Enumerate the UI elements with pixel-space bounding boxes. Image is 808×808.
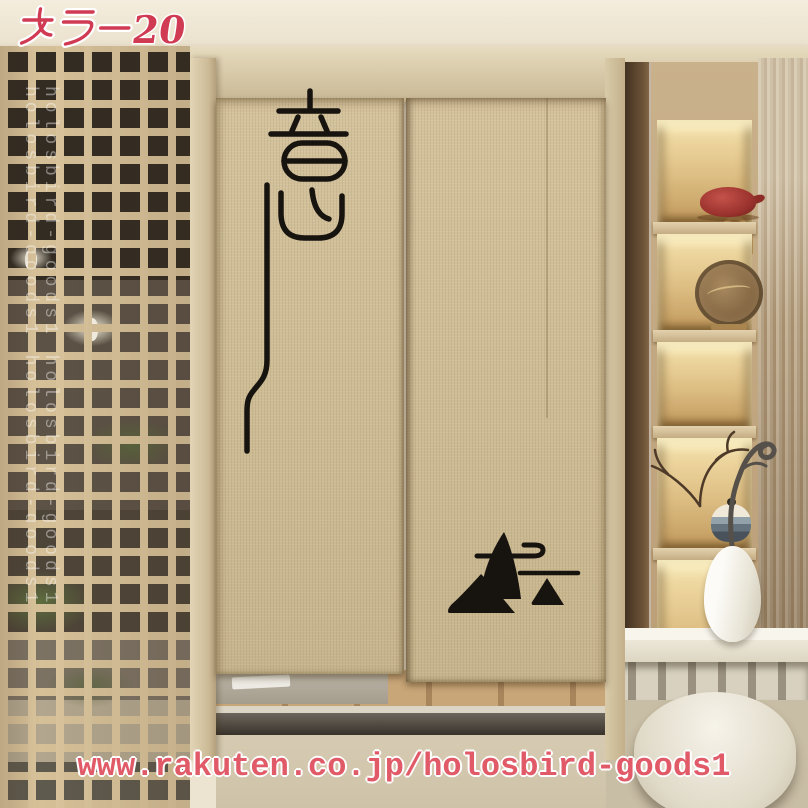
counter-lip xyxy=(216,706,606,713)
shelf-niche-3 xyxy=(657,342,752,426)
color-variant-label: 20 xyxy=(14,4,204,54)
jar-lid xyxy=(727,498,736,506)
decorative-plate-icon xyxy=(695,260,763,326)
counter-shadow xyxy=(216,713,606,735)
door-post-left xyxy=(190,58,216,760)
color-label-number: 20 xyxy=(129,8,188,53)
noren-panel-right xyxy=(406,98,606,682)
red-teapot-icon xyxy=(700,187,756,217)
side-watermark: holosbird-goods1 holosbird-goods1 holosb… xyxy=(26,86,60,776)
noren-fabric xyxy=(216,98,404,674)
noren-panel-left xyxy=(216,98,404,674)
fabric-crease xyxy=(546,98,548,418)
product-photo: holosbird-goods1 holosbird-goods1 holosb… xyxy=(0,0,808,808)
shelf-board xyxy=(653,222,756,234)
banded-jar-icon xyxy=(711,504,751,542)
shelf-board xyxy=(653,426,756,438)
shop-url-watermark: www.rakuten.co.jp/holosbird-goods1 xyxy=(0,748,808,792)
console-top xyxy=(606,628,808,640)
console-front xyxy=(606,640,808,662)
noren-fabric xyxy=(406,98,606,682)
shelf-board xyxy=(653,330,756,342)
door-post-right xyxy=(605,58,625,760)
white-vase-icon xyxy=(704,546,761,642)
